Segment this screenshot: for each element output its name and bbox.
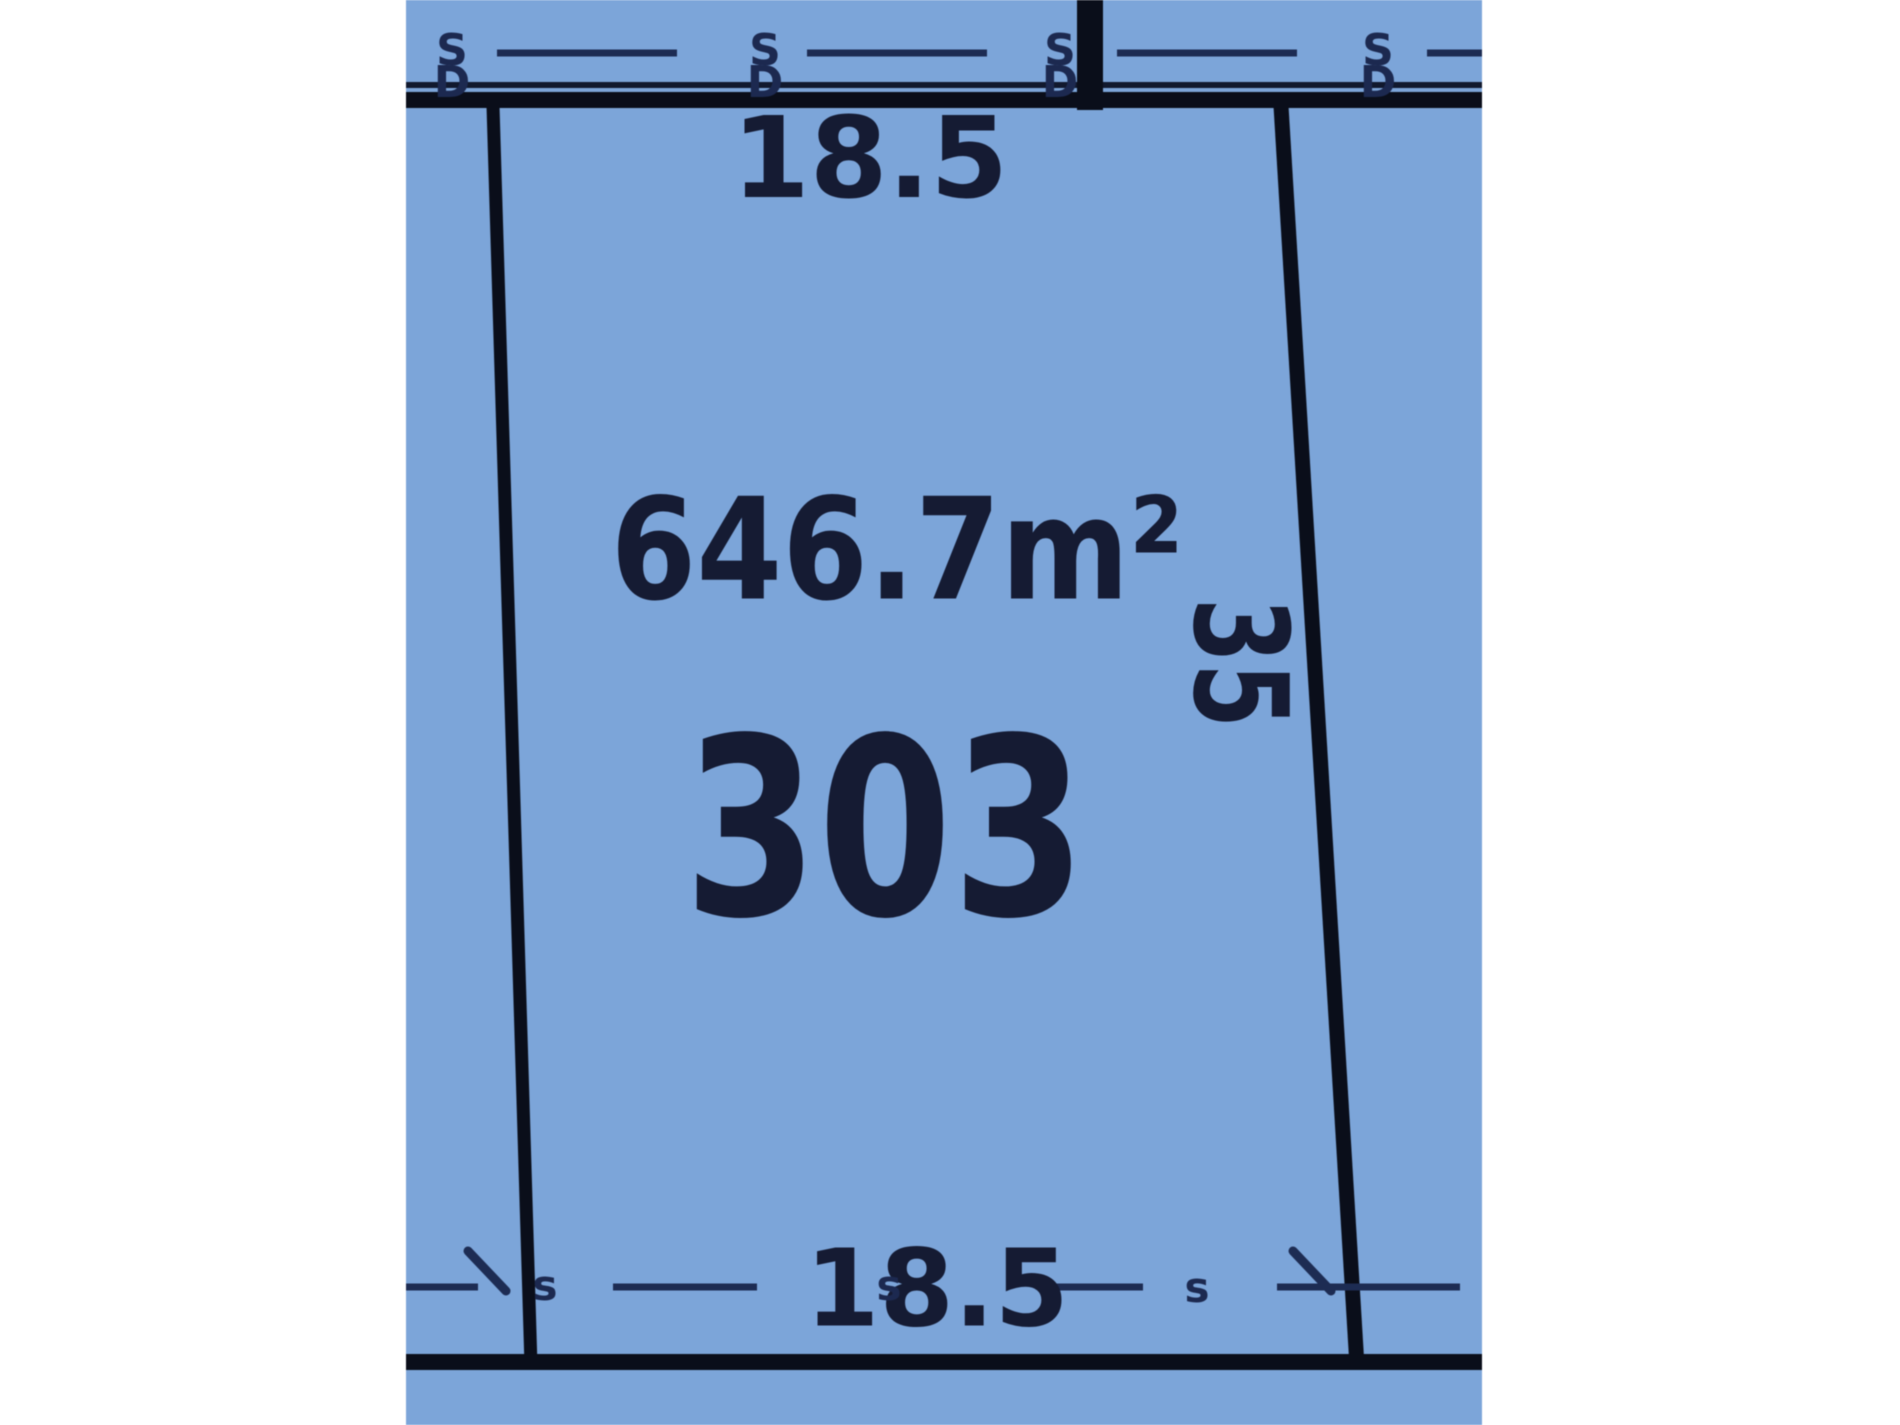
sd-marker-2: S D: [747, 35, 784, 99]
sd-marker-4-d: D: [1360, 67, 1397, 99]
lot-number-label: 303: [684, 707, 1086, 954]
easement-mark-2: s: [877, 1265, 902, 1307]
easement-mark-3: s: [1185, 1267, 1210, 1309]
sd-marker-4: S D: [1360, 35, 1397, 99]
depth-right-dimension: 35: [1175, 598, 1305, 728]
frontage-top-dimension: 18.5: [732, 103, 1008, 215]
left-lot-boundary: [493, 106, 531, 1366]
sd-marker-1-d: D: [434, 67, 471, 99]
sd-marker-3: S D: [1042, 35, 1079, 99]
plat-diagram: S D S D S D S D 18.5 646.7m² 35 303 18.5…: [0, 0, 1900, 1425]
easement-mark-1: s: [533, 1265, 558, 1307]
lot-area-label: 646.7m²: [611, 481, 1184, 622]
right-lot-boundary: [1281, 106, 1357, 1366]
sd-marker-3-d: D: [1042, 67, 1079, 99]
frontage-bottom-dimension: 18.5: [805, 1237, 1069, 1344]
sd-marker-1: S D: [434, 35, 471, 99]
